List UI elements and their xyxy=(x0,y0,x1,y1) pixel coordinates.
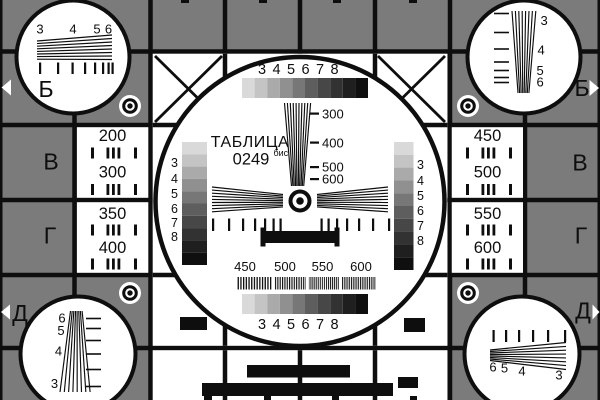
svg-text:6: 6 xyxy=(105,22,112,37)
svg-text:7: 7 xyxy=(316,317,324,333)
test-card-svg: 3 4 5 6 7 8 xyxy=(0,0,600,400)
svg-text:5: 5 xyxy=(57,323,64,338)
svg-text:6: 6 xyxy=(171,202,178,216)
svg-text:5: 5 xyxy=(93,22,100,37)
top-scale-5: 5 xyxy=(287,62,295,78)
svg-text:4: 4 xyxy=(55,344,62,359)
svg-text:8: 8 xyxy=(171,230,178,244)
svg-text:7: 7 xyxy=(417,219,424,233)
svg-text:5: 5 xyxy=(417,189,424,203)
bottom-bar-long xyxy=(202,383,393,396)
top-scale-3: 3 xyxy=(258,62,266,78)
bottom-bars-panel xyxy=(153,350,448,400)
svg-text:7: 7 xyxy=(171,216,178,230)
target-icon xyxy=(457,95,479,117)
svg-text:3: 3 xyxy=(51,376,58,391)
corner-circle-bottom-right: 6 5 4 3 xyxy=(465,297,580,400)
svg-text:450: 450 xyxy=(234,259,256,274)
svg-text:4: 4 xyxy=(69,22,76,37)
bottom-bar-short xyxy=(247,365,350,378)
panel-label-400: 400 xyxy=(99,239,127,257)
panel-label-550: 550 xyxy=(474,205,502,223)
wedge-label-400: 400 xyxy=(322,136,344,151)
svg-text:5: 5 xyxy=(501,361,508,376)
wedge-label-300: 300 xyxy=(322,107,344,122)
row-letter-g-right: Г xyxy=(575,223,588,249)
row-letter-g-left: Г xyxy=(44,223,57,249)
svg-text:5: 5 xyxy=(171,187,178,201)
svg-text:3: 3 xyxy=(171,156,178,170)
panel-label-300: 300 xyxy=(99,164,127,182)
wedge-label-600: 600 xyxy=(322,172,344,187)
top-scale-7: 7 xyxy=(316,62,324,78)
svg-text:500: 500 xyxy=(274,259,296,274)
grayscale-bar-top xyxy=(242,78,368,98)
row-letter-b-left: Б xyxy=(38,76,53,102)
card-code: 0249 xyxy=(233,151,270,169)
svg-text:3: 3 xyxy=(555,368,562,383)
svg-text:4: 4 xyxy=(518,364,525,379)
black-mark-right xyxy=(404,318,425,332)
target-icon xyxy=(119,282,141,304)
panel-label-350: 350 xyxy=(99,205,127,223)
row-letter-d-left: Д xyxy=(12,300,28,326)
svg-text:4: 4 xyxy=(538,43,545,58)
svg-text:3: 3 xyxy=(541,13,548,28)
top-scale-8: 8 xyxy=(330,62,338,78)
bottom-bar-small xyxy=(398,377,418,388)
panel-label-600: 600 xyxy=(474,239,502,257)
svg-text:6: 6 xyxy=(537,75,544,90)
corner-circle-top-right: 3 4 5 6 xyxy=(468,1,581,114)
svg-text:6: 6 xyxy=(301,317,309,333)
svg-text:3: 3 xyxy=(417,158,424,172)
corner-circle-bottom-left: 6 5 4 3 xyxy=(21,297,136,400)
svg-text:3: 3 xyxy=(36,22,43,37)
panel-label-500: 500 xyxy=(474,164,502,182)
row-letter-b-right: Б xyxy=(574,75,589,101)
svg-text:6: 6 xyxy=(489,360,496,375)
black-mark-left xyxy=(180,317,207,330)
svg-text:4: 4 xyxy=(417,174,424,188)
svg-text:550: 550 xyxy=(312,259,334,274)
svg-text:6: 6 xyxy=(417,204,424,218)
svg-text:600: 600 xyxy=(350,259,372,274)
test-card-0249: 3 4 5 6 7 8 xyxy=(0,0,600,400)
panel-label-450: 450 xyxy=(474,127,502,145)
top-scale-6: 6 xyxy=(301,62,309,78)
svg-text:4: 4 xyxy=(272,317,280,333)
row-letter-d-right: Д xyxy=(575,298,591,324)
panel-label-200: 200 xyxy=(99,127,127,145)
svg-text:5: 5 xyxy=(287,317,295,333)
svg-text:8: 8 xyxy=(417,234,424,248)
row-letter-v-right: В xyxy=(572,150,587,176)
corner-circle-top-left: 3 4 5 6 xyxy=(17,1,130,114)
card-code-sup: бис xyxy=(274,148,289,158)
svg-text:8: 8 xyxy=(330,317,338,333)
top-scale-4: 4 xyxy=(272,62,280,78)
center-target-icon xyxy=(291,192,310,211)
row-letter-v-left: В xyxy=(43,149,58,175)
target-icon xyxy=(119,95,141,117)
grayscale-bar-bottom xyxy=(242,294,368,314)
svg-text:3: 3 xyxy=(258,317,266,333)
target-icon xyxy=(457,282,479,304)
svg-text:4: 4 xyxy=(171,172,178,186)
